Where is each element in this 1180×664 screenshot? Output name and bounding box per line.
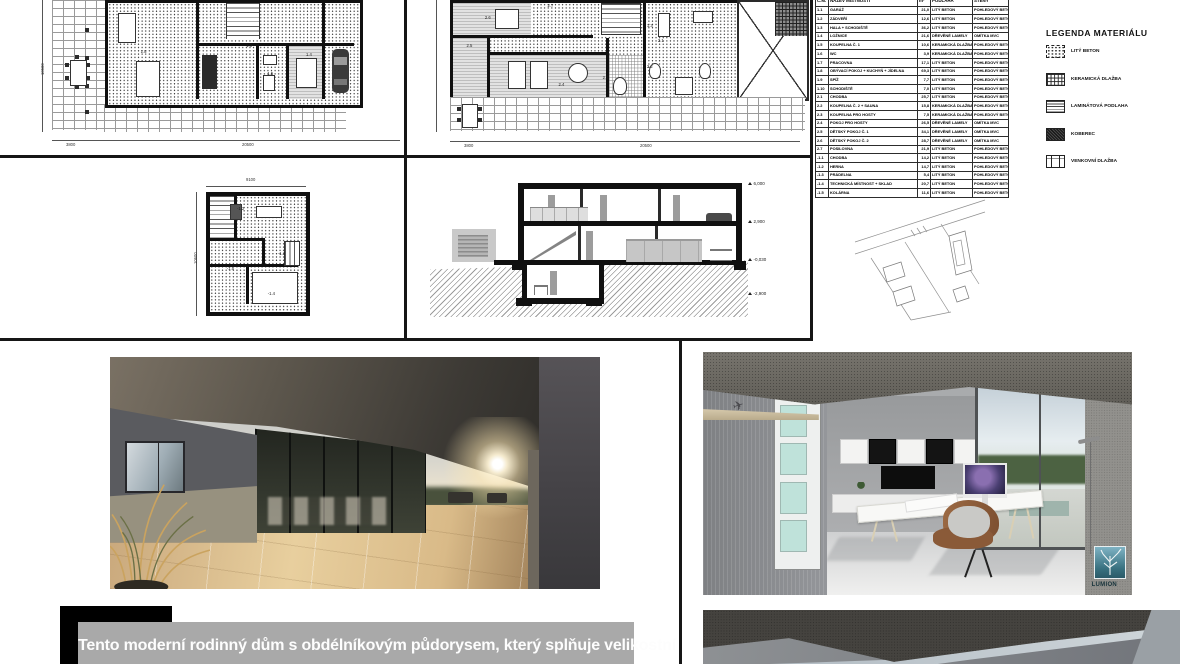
presentation-board: 1.81.31.41.5 3800 20500 10500 xyxy=(0,0,1180,664)
material-swatch xyxy=(1046,73,1065,86)
material-swatch xyxy=(1046,155,1065,168)
table-row: 1.5KOUPELNA Č. 110,6KERAMICKÁ DLAŽBAPOHL… xyxy=(816,41,1009,50)
upper-floor-room-labels: 2.62.52.72.42.32.22.11.3 xyxy=(440,0,808,152)
ceiling-render-image xyxy=(703,610,1180,664)
elevation-level-label: 6,000 xyxy=(748,181,765,186)
floor-lamp xyxy=(1090,442,1092,554)
dimension-label: 3800 xyxy=(66,142,75,147)
tv-screen xyxy=(881,466,935,489)
table-row: 2.6DĚTSKÝ POKOJ Č. 228,7DŘEVĚNÉ LAMELYOM… xyxy=(816,137,1009,146)
stool xyxy=(534,285,548,295)
table-row: -1.2HERNA14,7LITÝ BETONPOHLEDOVÝ BETON xyxy=(816,163,1009,172)
room-label: 1.5 xyxy=(267,72,273,76)
room-label: 1.8 xyxy=(141,50,147,54)
room-label: 2.2 xyxy=(647,65,653,69)
divider-horizontal-bottom xyxy=(0,338,813,341)
legend-item-label: KOBEREC xyxy=(1071,132,1095,137)
legend-item: LAMINÁTOVÁ PODLAHA xyxy=(1046,100,1174,113)
building-section: 6,0002,900-0,030-2,900 xyxy=(430,173,764,319)
stair-flight xyxy=(530,231,576,260)
room-label: 2.7 xyxy=(547,4,553,8)
computer-monitor xyxy=(963,463,1008,498)
dimension-label: 10500 xyxy=(40,63,45,75)
dimension-label: 20500 xyxy=(242,142,254,147)
room-label: 2.1 xyxy=(658,39,664,43)
divider-vertical-left xyxy=(404,0,407,341)
dimension-line xyxy=(436,0,437,132)
divider-vertical-bottom xyxy=(679,338,682,664)
plant xyxy=(857,482,865,492)
legend-item-label: KERAMICKÁ DLAŽBA xyxy=(1071,77,1121,82)
table-row: 2.7POSILOVNA21,9LITÝ BETONPOHLEDOVÝ BETO… xyxy=(816,145,1009,154)
table-row: 2.5DĚTSKÝ POKOJ Č. 134,1DŘEVĚNÉ LAMELYOM… xyxy=(816,128,1009,137)
table-row: 1.3HALA + SCHODIŠTĚ36,2LITÝ BETONPOHLEDO… xyxy=(816,24,1009,33)
legend-item: KOBEREC xyxy=(1046,128,1174,141)
table-row: 1.10SCHODIŠTĚ7,0LITÝ BETONPOHLEDOVÝ BETO… xyxy=(816,84,1009,93)
table-row: 1.9SPÍŽ7,7LITÝ BETONPOHLEDOVÝ BETON xyxy=(816,76,1009,85)
bed xyxy=(706,213,732,221)
lounge-chair-cushion xyxy=(948,506,991,538)
kitchen-counter xyxy=(626,239,702,262)
room-label: 1.3 xyxy=(647,24,653,28)
table-row: 1.2ZÁDVEŘÍ12,6LITÝ BETONPOHLEDOVÝ BETON xyxy=(816,15,1009,24)
far-column xyxy=(528,450,539,589)
elevation-levels: 6,0002,900-0,030-2,900 xyxy=(748,173,764,319)
description-text: Tento moderní rodinný dům s obdélníkovým… xyxy=(78,637,634,655)
dimension-line xyxy=(52,140,400,141)
table-row: 2.2KOUPELNA Č. 2 + SAUNA15,8KERAMICKÁ DL… xyxy=(816,102,1009,111)
lumion-logo-text: LUMION xyxy=(1092,582,1117,588)
wall-cabinets xyxy=(840,439,982,463)
room-label: 1.4 xyxy=(306,53,312,57)
room-label: 1.3 xyxy=(246,44,252,48)
ground-floor-plan: 1.81.31.41.5 3800 20500 10500 xyxy=(52,0,404,152)
room-label: -1.1 xyxy=(258,238,265,242)
table-row: 1.7PRACOVNA17,1LITÝ BETONPOHLEDOVÝ BETON xyxy=(816,58,1009,67)
room-label: -1.4 xyxy=(268,292,275,296)
lumion-watermark: LUMION xyxy=(1092,546,1126,588)
interior-render-image: ✈ xyxy=(703,352,1132,595)
legend-title: LEGENDA MATERIÁLU xyxy=(1046,28,1174,38)
table-row: 1.1GARÁŽ21,0LITÝ BETONPOHLEDOVÝ BETON xyxy=(816,6,1009,15)
dimension-label: 3800 xyxy=(464,143,473,148)
table-row: 1.4LOŽNICE21,6DŘEVĚNÉ LAMELYOMÍTKA MVC xyxy=(816,32,1009,41)
material-swatch xyxy=(1046,100,1065,113)
room-label: -1.2 xyxy=(237,207,244,211)
table-row: 1.6WC3,9KERAMICKÁ DLAŽBAPOHLEDOVÝ BETON xyxy=(816,50,1009,59)
garage-annex xyxy=(452,229,496,262)
room-label: -1.3 xyxy=(278,252,285,256)
upper-cabinets xyxy=(530,207,588,221)
outdoor-sofa xyxy=(487,493,507,503)
elevation-level-label: -2,900 xyxy=(748,291,766,296)
elevation-level-label: 2,900 xyxy=(748,219,765,224)
divider-horizontal-top xyxy=(0,155,813,158)
divider-vertical-right xyxy=(810,0,813,341)
outdoor-sofa xyxy=(448,492,473,504)
room-label: 2.6 xyxy=(485,16,491,20)
room-label: 2.5 xyxy=(467,44,473,48)
room-schedule-table: Č.M. NÁZEV MÍSTNOSTI m² PODLAHA STĚNY 1.… xyxy=(815,0,1009,198)
material-swatch xyxy=(1046,45,1065,58)
table-row: 2.4POKOJ PRO HOSTY26,5DŘEVĚNÉ LAMELYOMÍT… xyxy=(816,119,1009,128)
table-row: -1.1CHODBA14,2LITÝ BETONPOHLEDOVÝ BETON xyxy=(816,154,1009,163)
legend-item-label: LITÝ BETON xyxy=(1071,49,1099,54)
dimension-label: 20500 xyxy=(640,143,652,148)
legend-item-label: LAMINÁTOVÁ PODLAHA xyxy=(1071,104,1128,109)
near-column xyxy=(539,357,600,589)
legend-item: KERAMICKÁ DLAŽBA xyxy=(1046,73,1174,86)
basement-room-labels: -1.2-1.1-1.3-1.5-1.4 xyxy=(192,176,320,324)
legend-item-label: VENKOVNÍ DLAŽBA xyxy=(1071,159,1117,164)
elevation-level-label: -0,030 xyxy=(748,257,766,262)
site-plan-sketch xyxy=(853,180,988,322)
material-legend: LEGENDA MATERIÁLU LITÝ BETON KERAMICKÁ D… xyxy=(1046,28,1174,183)
exterior-render-image xyxy=(110,357,600,589)
table-row: -1.3PRÁDELNA5,4LITÝ BETONPOHLEDOVÝ BETON xyxy=(816,171,1009,180)
description-box: Tento moderní rodinný dům s obdélníkovým… xyxy=(78,622,634,664)
upper-floor-plan: 2.62.52.72.42.32.22.11.3 3800 20500 xyxy=(440,0,808,152)
window-mullion xyxy=(1039,377,1041,547)
room-label: 2.3 xyxy=(603,76,609,80)
table-row: 1.8OBÝVACÍ POKOJ + KUCHYŇ + JÍDELNA69,3L… xyxy=(816,67,1009,76)
material-swatch xyxy=(1046,128,1065,141)
lumion-logo-icon xyxy=(1094,546,1126,579)
table-row: 2.3KOUPELNA PRO HOSTY7,5KERAMICKÁ DLAŽBA… xyxy=(816,110,1009,119)
basement-plan: 9100 10600 -1.2-1.1-1.3-1.5-1.4 xyxy=(192,176,320,324)
dimension-line xyxy=(450,141,800,142)
room-label: 2.4 xyxy=(559,83,565,87)
legend-item: LITÝ BETON xyxy=(1046,45,1174,58)
foreground-plants xyxy=(110,445,277,589)
legend-item: VENKOVNÍ DLAŽBA xyxy=(1046,155,1174,168)
legend-items: LITÝ BETON KERAMICKÁ DLAŽBA LAMINÁTOVÁ P… xyxy=(1046,45,1174,168)
table-chairs xyxy=(710,249,732,261)
ground-floor-room-labels: 1.81.31.41.5 xyxy=(52,0,404,152)
room-label: -1.5 xyxy=(227,267,234,271)
table-row: 2.1CHODBA25,7LITÝ BETONPOHLEDOVÝ BETON xyxy=(816,93,1009,102)
